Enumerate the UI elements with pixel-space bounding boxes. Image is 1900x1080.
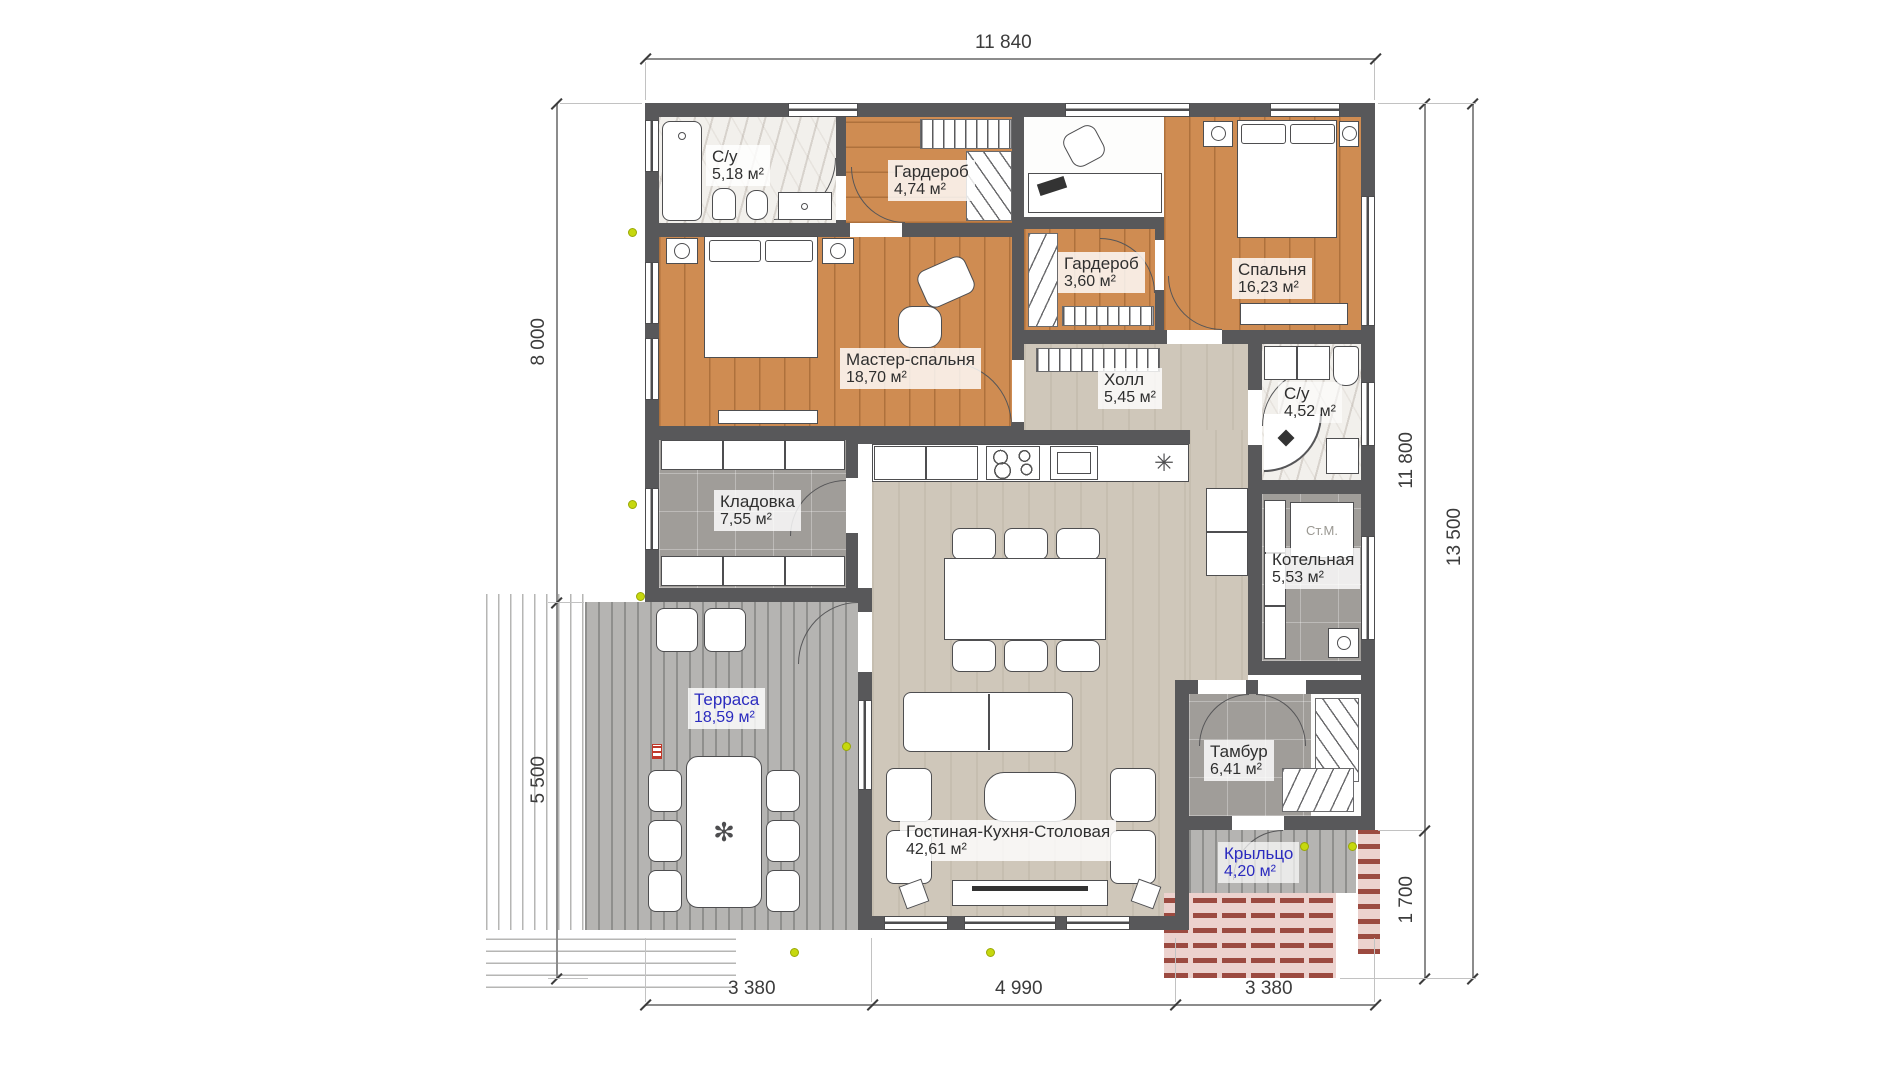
wall-boiler-bottom bbox=[1248, 661, 1375, 675]
utility-marker bbox=[1348, 842, 1357, 851]
fan-icon: ✻ bbox=[702, 810, 746, 854]
door-gap bbox=[850, 223, 902, 237]
dim-line-bottom bbox=[645, 1004, 1375, 1006]
utility-marker bbox=[1300, 842, 1309, 851]
cabinet bbox=[785, 556, 845, 586]
boiler-dial bbox=[1337, 636, 1351, 650]
dining-chair bbox=[1004, 640, 1048, 672]
lamp bbox=[1211, 126, 1226, 141]
closet-rail bbox=[920, 119, 1012, 149]
sink-glyph: ✳ bbox=[1154, 449, 1174, 478]
room-name: Гардероб bbox=[1064, 254, 1139, 273]
cabinet bbox=[1297, 346, 1330, 380]
utility-marker bbox=[636, 592, 645, 601]
pillow bbox=[709, 240, 761, 262]
room-label-bathroom-1: С/у 5,18 м² bbox=[706, 145, 770, 186]
cabinet bbox=[661, 556, 723, 586]
room-name: Гардероб bbox=[894, 162, 969, 181]
room-label-porch: Крыльцо 4,20 м² bbox=[1218, 842, 1299, 883]
media-console bbox=[718, 410, 818, 424]
room-label-bathroom-2: С/у 4,52 м² bbox=[1278, 382, 1342, 423]
ext-line bbox=[1378, 103, 1476, 104]
toilet bbox=[712, 188, 736, 220]
room-label-master: Мастер-спальня 18,70 м² bbox=[840, 348, 981, 389]
tv-console bbox=[952, 880, 1108, 906]
room-label-storage: Кладовка 7,55 м² bbox=[714, 490, 801, 531]
red-marker bbox=[652, 744, 662, 759]
pillow bbox=[1241, 124, 1286, 144]
stove bbox=[986, 446, 1040, 480]
lounge-chair bbox=[656, 608, 698, 652]
room-area: 7,55 м² bbox=[720, 511, 795, 529]
door-gap bbox=[1167, 330, 1222, 344]
side-table bbox=[898, 306, 942, 348]
lamp bbox=[674, 243, 690, 259]
cabinet bbox=[1206, 488, 1248, 532]
door-gap bbox=[1198, 680, 1246, 694]
utility-marker bbox=[628, 228, 637, 237]
room-name: Котельная bbox=[1272, 550, 1354, 569]
room-name: Крыльцо bbox=[1224, 844, 1293, 863]
terrace-chair bbox=[648, 820, 682, 862]
room-name: С/у bbox=[1284, 384, 1336, 403]
window bbox=[645, 262, 659, 324]
dim-label-right-porch: 1 700 bbox=[1396, 876, 1418, 924]
room-name: С/у bbox=[712, 147, 764, 166]
dim-label-top: 11 840 bbox=[975, 32, 1032, 54]
room-area: 18,59 м² bbox=[694, 709, 759, 727]
door-gap bbox=[1155, 240, 1164, 290]
kitchen-cabinet bbox=[874, 446, 926, 480]
sink-vanity bbox=[1326, 438, 1359, 474]
wall-living-right bbox=[1175, 816, 1189, 930]
cabinet bbox=[723, 556, 785, 586]
sink-icon: ✳ bbox=[1144, 446, 1184, 480]
cabinet-tall bbox=[1264, 500, 1286, 553]
ext-line bbox=[1340, 978, 1476, 979]
terrace-chair bbox=[766, 820, 800, 862]
sofa-back-line bbox=[988, 694, 990, 750]
wall-study-bottom bbox=[1024, 217, 1164, 229]
door-gap bbox=[836, 176, 846, 220]
washer-label: Ст.М. bbox=[1306, 523, 1338, 538]
window bbox=[645, 488, 659, 550]
cabinet bbox=[785, 440, 845, 470]
terrace-chair bbox=[648, 770, 682, 812]
fan-glyph: ✻ bbox=[713, 817, 735, 848]
dim-line-left-lower bbox=[556, 602, 558, 978]
ext-line bbox=[1374, 62, 1375, 100]
window bbox=[788, 103, 858, 117]
armchair bbox=[1110, 768, 1156, 822]
room-label-wardrobe-1: Гардероб 4,74 м² bbox=[888, 160, 975, 201]
ext-line bbox=[645, 938, 646, 1002]
toilet bbox=[1333, 346, 1359, 386]
window bbox=[964, 916, 1056, 930]
dim-line-right-inner bbox=[1424, 103, 1426, 978]
utility-marker bbox=[790, 948, 799, 957]
kitchen-cabinet bbox=[926, 446, 978, 480]
room-name: Холл bbox=[1104, 370, 1156, 389]
cabinet bbox=[723, 440, 785, 470]
ext-line bbox=[1378, 830, 1422, 831]
window bbox=[645, 338, 659, 400]
room-name: Гостиная-Кухня-Столовая bbox=[906, 822, 1110, 841]
wall-boiler-left bbox=[1248, 494, 1262, 661]
terrace-chair bbox=[766, 770, 800, 812]
dining-chair bbox=[952, 528, 996, 560]
armchair bbox=[886, 768, 932, 822]
oven bbox=[1050, 446, 1098, 480]
lamp bbox=[830, 243, 846, 259]
dim-label-left-lower: 5 500 bbox=[528, 756, 550, 804]
porch-brick-apron bbox=[1164, 893, 1336, 978]
window bbox=[645, 120, 659, 172]
wall-top bbox=[645, 103, 1375, 117]
ext-line bbox=[1374, 938, 1375, 1002]
door-gap bbox=[1248, 390, 1262, 445]
room-area: 5,18 м² bbox=[712, 166, 764, 184]
dim-label-bottom-center: 4 990 bbox=[995, 978, 1043, 1000]
lamp bbox=[1342, 126, 1357, 141]
room-name: Кладовка bbox=[720, 492, 795, 511]
dining-chair bbox=[1004, 528, 1048, 560]
dim-label-bottom-left: 3 380 bbox=[728, 978, 776, 1000]
tv bbox=[972, 886, 1088, 891]
room-name: Мастер-спальня bbox=[846, 350, 975, 369]
door-gap bbox=[1012, 360, 1024, 422]
cabinet-tall bbox=[1264, 606, 1286, 659]
window bbox=[1065, 103, 1190, 117]
armchair bbox=[1110, 830, 1156, 884]
window bbox=[858, 700, 872, 790]
window bbox=[884, 916, 948, 930]
window bbox=[1270, 103, 1340, 117]
terrace-chair bbox=[766, 870, 800, 912]
room-label-terrace: Терраса 18,59 м² bbox=[688, 688, 765, 729]
ext-line bbox=[871, 938, 872, 1002]
room-label-vestibule: Тамбур 6,41 м² bbox=[1204, 740, 1274, 781]
dim-line-top bbox=[645, 58, 1375, 60]
room-label-bedroom: Спальня 16,23 м² bbox=[1232, 258, 1312, 299]
window bbox=[1361, 196, 1375, 326]
wall-kitchen-back bbox=[858, 430, 1190, 444]
cabinet bbox=[1206, 532, 1248, 576]
room-name: Спальня bbox=[1238, 260, 1306, 279]
dim-line-right-outer bbox=[1472, 103, 1474, 978]
wall-vestibule-left bbox=[1175, 680, 1189, 816]
coffee-table bbox=[984, 772, 1076, 822]
dresser bbox=[1240, 303, 1348, 325]
window bbox=[1066, 916, 1130, 930]
dining-chair bbox=[1056, 528, 1100, 560]
dining-chair bbox=[952, 640, 996, 672]
sink-drain bbox=[801, 203, 808, 210]
ext-line bbox=[1175, 938, 1176, 1002]
room-area: 5,53 м² bbox=[1272, 569, 1354, 587]
dining-table bbox=[944, 558, 1106, 640]
bathtub-drain bbox=[678, 132, 686, 140]
porch-brick-strip bbox=[1358, 830, 1380, 954]
room-label-hall: Холл 5,45 м² bbox=[1098, 368, 1162, 409]
closet-rail bbox=[1062, 306, 1154, 326]
dim-label-left-upper: 8 000 bbox=[528, 318, 550, 366]
cabinet bbox=[661, 440, 723, 470]
room-label-living: Гостиная-Кухня-Столовая 42,61 м² bbox=[900, 820, 1116, 861]
room-area: 4,20 м² bbox=[1224, 863, 1293, 881]
terrace-deck-apron bbox=[486, 930, 736, 988]
dim-label-right-outer: 13 500 bbox=[1444, 508, 1466, 566]
ext-line bbox=[645, 62, 646, 100]
ext-line bbox=[548, 602, 584, 603]
dim-line-left-upper bbox=[556, 103, 558, 602]
room-area: 18,70 м² bbox=[846, 369, 975, 387]
pillow bbox=[1290, 124, 1335, 144]
dim-label-right-inner: 11 800 bbox=[1396, 432, 1418, 489]
door-gap bbox=[846, 478, 858, 533]
window bbox=[1361, 536, 1375, 640]
cabinet bbox=[1264, 346, 1297, 380]
room-area: 3,60 м² bbox=[1064, 273, 1139, 291]
room-name: Тамбур bbox=[1210, 742, 1268, 761]
terrace-chair bbox=[648, 870, 682, 912]
lounge-chair bbox=[704, 608, 746, 652]
dim-label-bottom-right: 3 380 bbox=[1245, 978, 1293, 1000]
dining-chair bbox=[1056, 640, 1100, 672]
utility-marker bbox=[842, 742, 851, 751]
wall-bottom-left bbox=[645, 588, 872, 602]
ext-line bbox=[548, 978, 588, 979]
wall-bath2-bottom bbox=[1248, 480, 1375, 494]
door-gap bbox=[1258, 680, 1306, 694]
room-area: 42,61 м² bbox=[906, 841, 1110, 859]
utility-marker bbox=[628, 500, 637, 509]
bidet bbox=[746, 190, 768, 220]
utility-marker bbox=[986, 948, 995, 957]
wall-toprow-bottom bbox=[645, 223, 1024, 237]
closet-shelves bbox=[1028, 233, 1058, 327]
room-area: 4,74 м² bbox=[894, 181, 969, 199]
room-area: 4,52 м² bbox=[1284, 403, 1336, 421]
floor-plan: Ст.М. ✳ ✻ С/у 5,18 м² Гардероб bbox=[0, 0, 1900, 1080]
room-area: 16,23 м² bbox=[1238, 279, 1306, 297]
room-label-boiler: Котельная 5,53 м² bbox=[1266, 548, 1360, 589]
room-area: 5,45 м² bbox=[1104, 389, 1156, 407]
door-gap bbox=[858, 612, 872, 672]
room-name: Терраса bbox=[694, 690, 759, 709]
pillow bbox=[765, 240, 813, 262]
shoe-mat bbox=[1282, 768, 1354, 812]
room-label-wardrobe-2: Гардероб 3,60 м² bbox=[1058, 252, 1145, 293]
ext-line bbox=[560, 103, 642, 104]
window bbox=[1361, 382, 1375, 446]
room-area: 6,41 м² bbox=[1210, 761, 1268, 779]
door-gap bbox=[1232, 816, 1284, 830]
